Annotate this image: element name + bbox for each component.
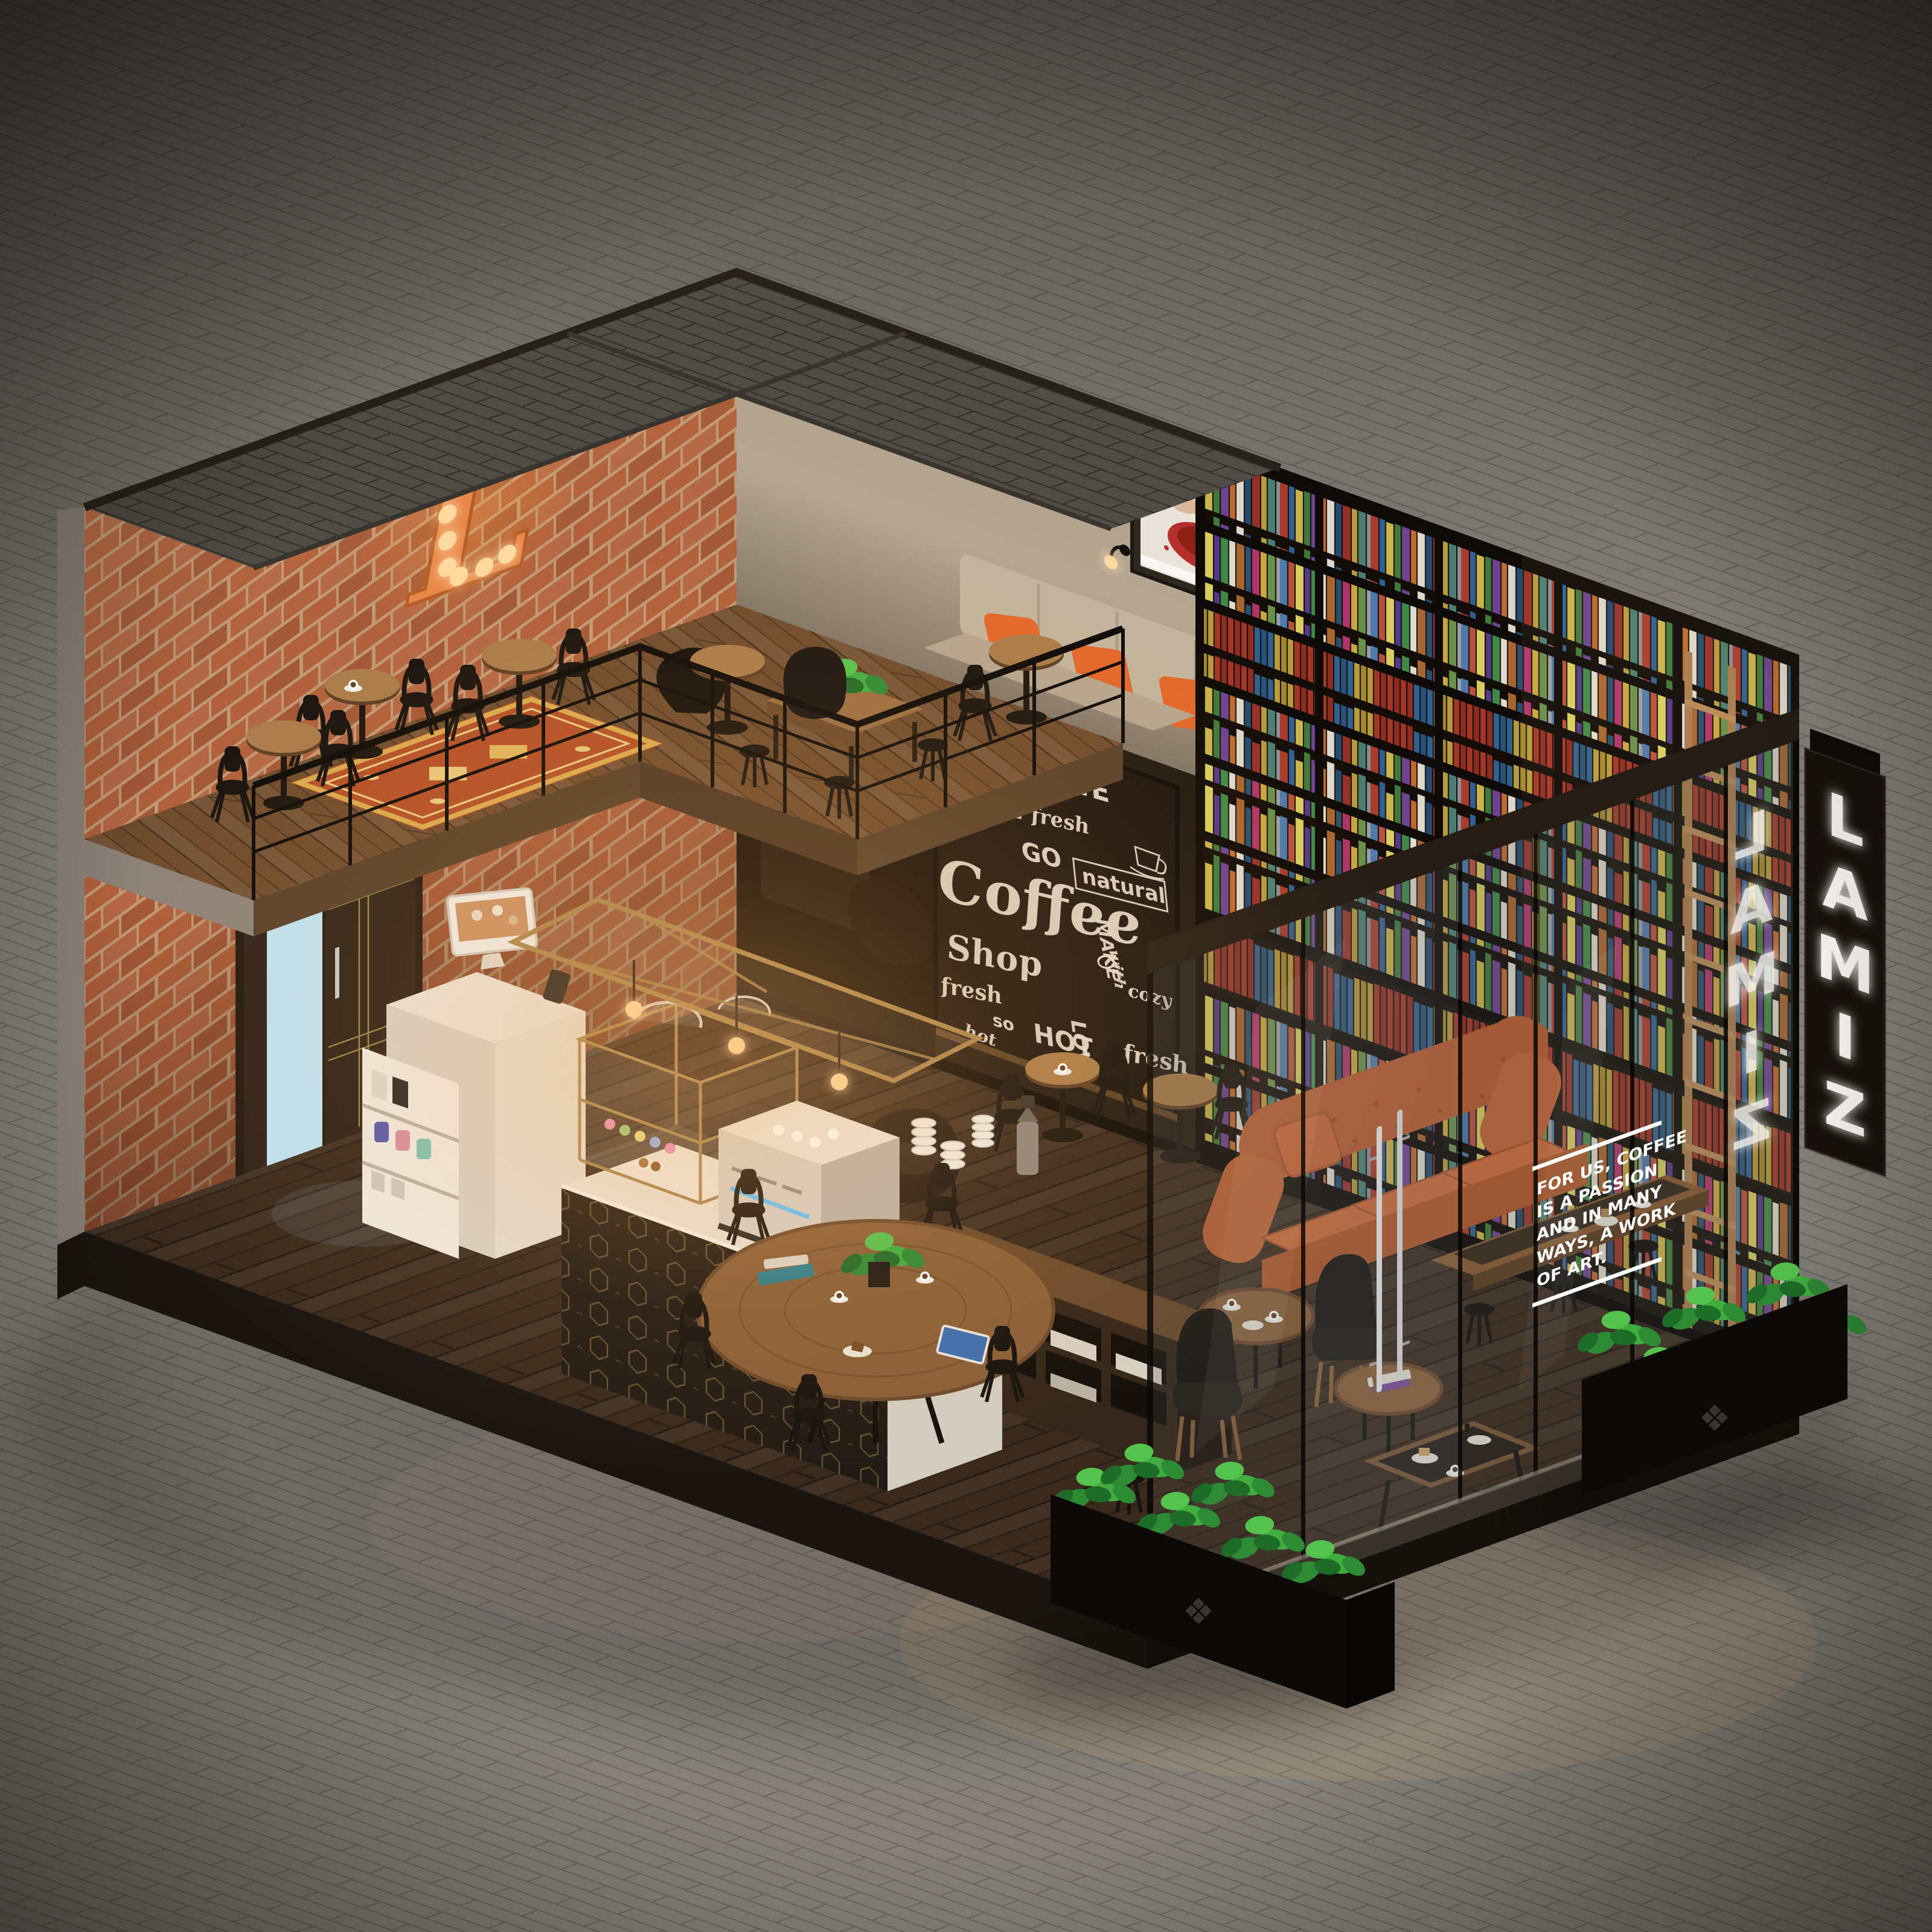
scene-stage: L — [0, 0, 1932, 1932]
atmosphere — [0, 0, 1932, 1932]
isometric-coffee-shop-render: L — [0, 0, 1932, 1932]
vignette — [0, 0, 1932, 1932]
